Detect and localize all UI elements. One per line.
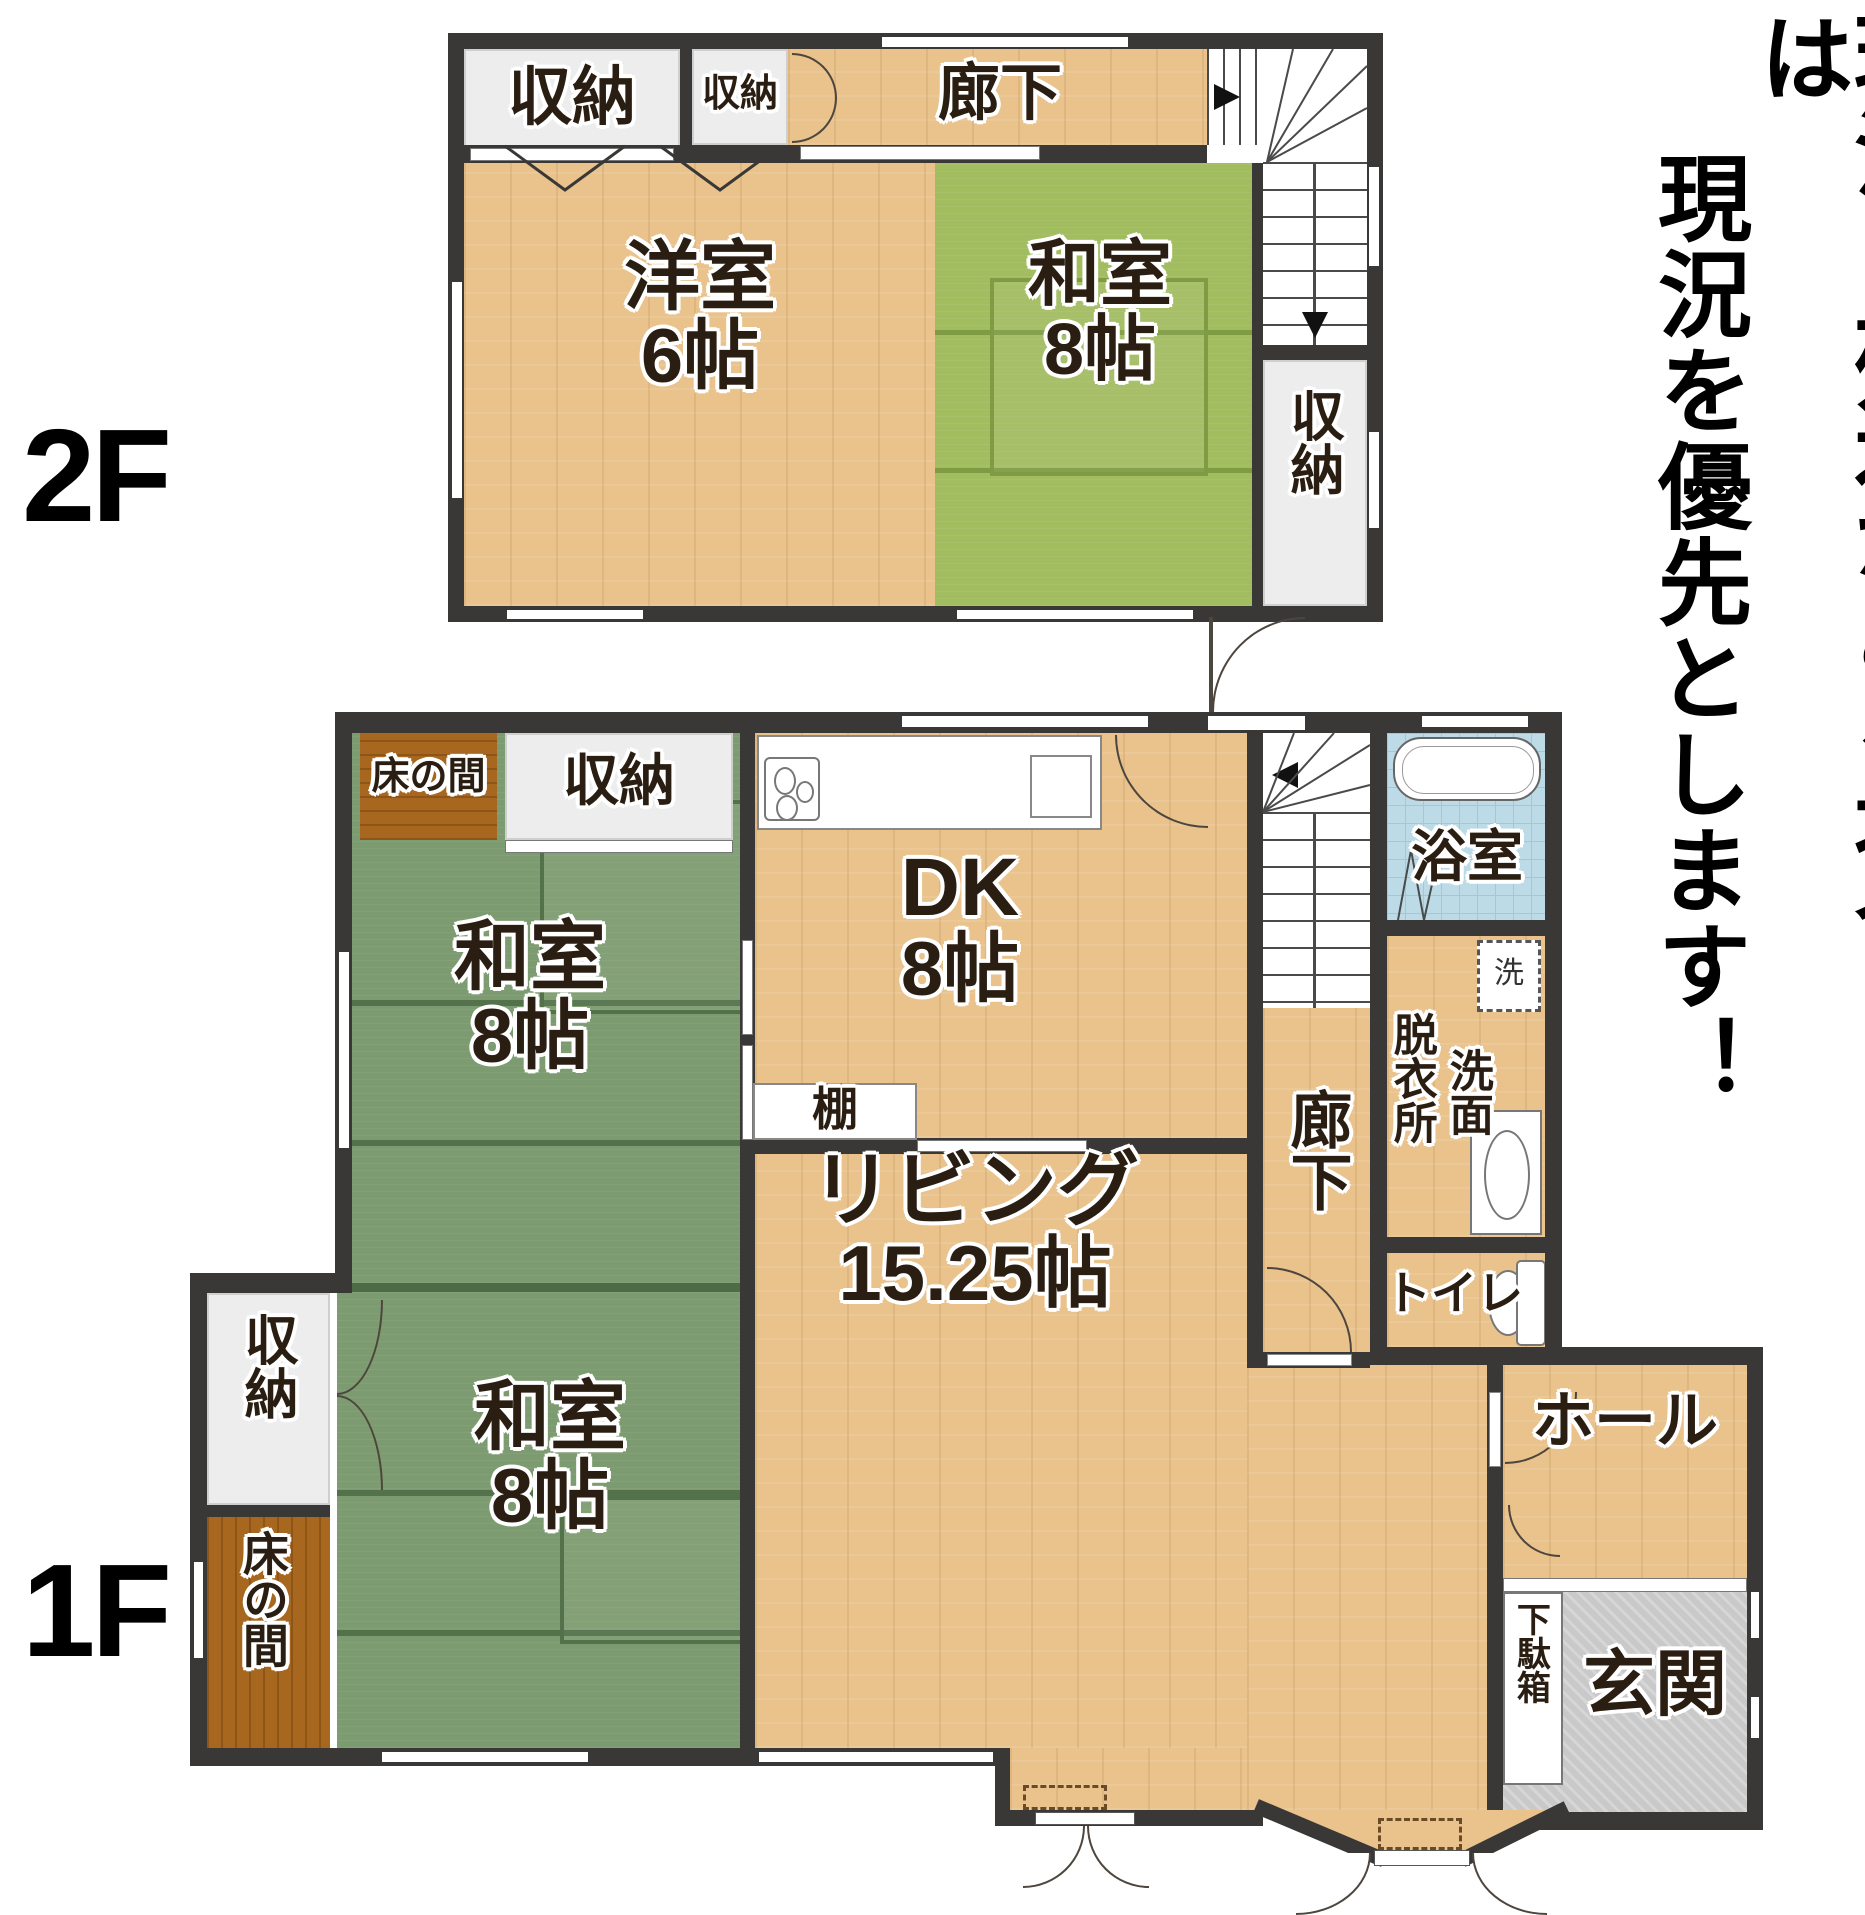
floor1-closet-side-label: 収納 <box>238 1312 294 1420</box>
washer-label: 洗 <box>1477 958 1541 989</box>
floor1-plan: 床の間 収納 DK 8帖 浴室 洗 脱衣所 洗面 トイレ 廊下 棚 和室 8帖 … <box>0 500 1865 1915</box>
floor1-japanese-upper-label: 和室 8帖 <box>420 918 640 1076</box>
floor2-closet-small-label: 収納 <box>692 75 788 115</box>
floor2-corridor-label: 廊下 <box>890 62 1110 126</box>
floor2-closet-big-label: 収納 <box>464 64 680 131</box>
floor1-tokonoma-side-label: 床の間 <box>238 1530 286 1668</box>
door-opening <box>1374 1850 1470 1866</box>
dashed-marker <box>1378 1818 1462 1850</box>
floor2-japanese-room-label: 和室 8帖 <box>995 238 1205 388</box>
floor1-shoe-box-label: 下駄箱 <box>1512 1602 1547 1704</box>
floor1-corridor-label: 廊下 <box>1282 1088 1346 1212</box>
dashed-marker <box>1023 1785 1107 1810</box>
floor1-tokonoma-top-label: 床の間 <box>356 758 501 798</box>
floor1-closet-top-label: 収納 <box>505 752 733 810</box>
floorplan-sheet: 収納 収納 廊下 洋室 6帖 和室 8帖 収納 2F 1F 現況と相違がある場合… <box>0 0 1865 1915</box>
floor2-closet-side-label: 収納 <box>1284 388 1340 496</box>
floor1-dk-label: DK 8帖 <box>855 845 1065 1009</box>
floor1-hall-label: ホール <box>1505 1390 1745 1454</box>
floor1-washroom-label: 洗面 <box>1444 1048 1490 1136</box>
floor2-western-room-label: 洋室 6帖 <box>560 238 840 396</box>
floor1-dressing-label: 脱衣所 <box>1388 1012 1434 1144</box>
floor1-shelf-label: 棚 <box>790 1086 880 1134</box>
floor1-entrance-label: 玄関 <box>1570 1648 1740 1723</box>
floor1-japanese-lower-label: 和室 8帖 <box>440 1378 660 1536</box>
floor1-living-label: リビング 15.25帖 <box>770 1148 1180 1314</box>
door-opening <box>1035 1812 1135 1825</box>
floor1-bath-label: 浴室 <box>1392 828 1542 886</box>
floor1-toilet-label: トイレ <box>1385 1270 1495 1318</box>
